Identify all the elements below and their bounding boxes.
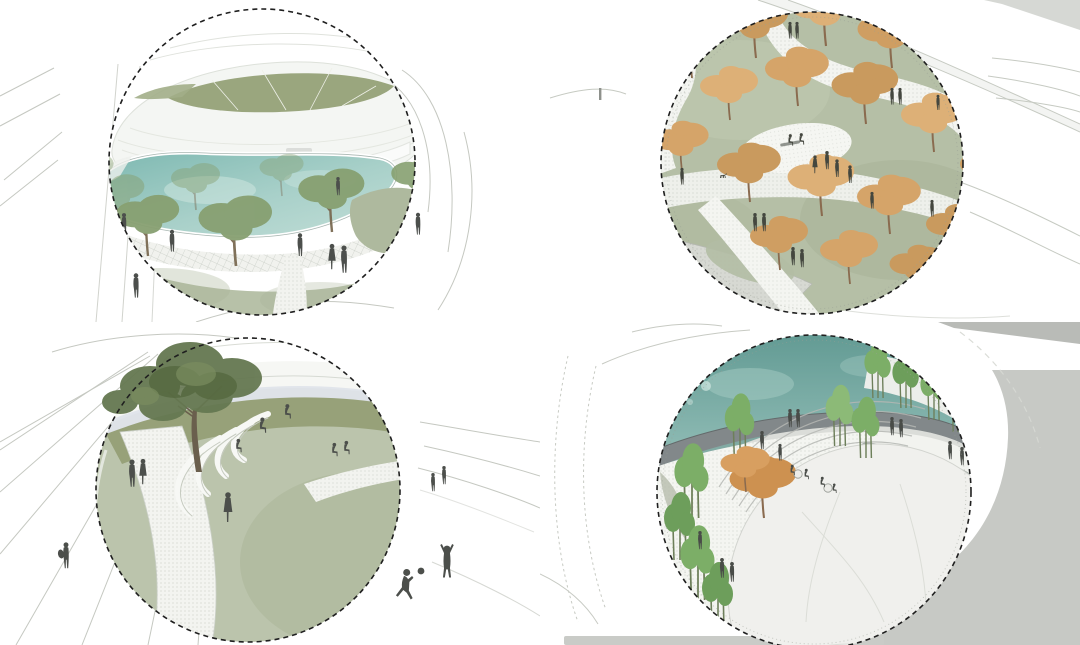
panel-great-lawn (0, 322, 540, 645)
road-corner-wedge (984, 0, 1080, 30)
panel-lakeside-dome (540, 322, 1080, 645)
ball-icon (418, 568, 425, 575)
rendering-collage (0, 0, 1080, 645)
road-corner-stripe (938, 322, 1080, 344)
person-with-bag (57, 542, 69, 568)
signpost (599, 88, 601, 100)
panel-autumn-grove (540, 0, 1080, 322)
panel-pavilion-water-plaza (0, 0, 540, 322)
